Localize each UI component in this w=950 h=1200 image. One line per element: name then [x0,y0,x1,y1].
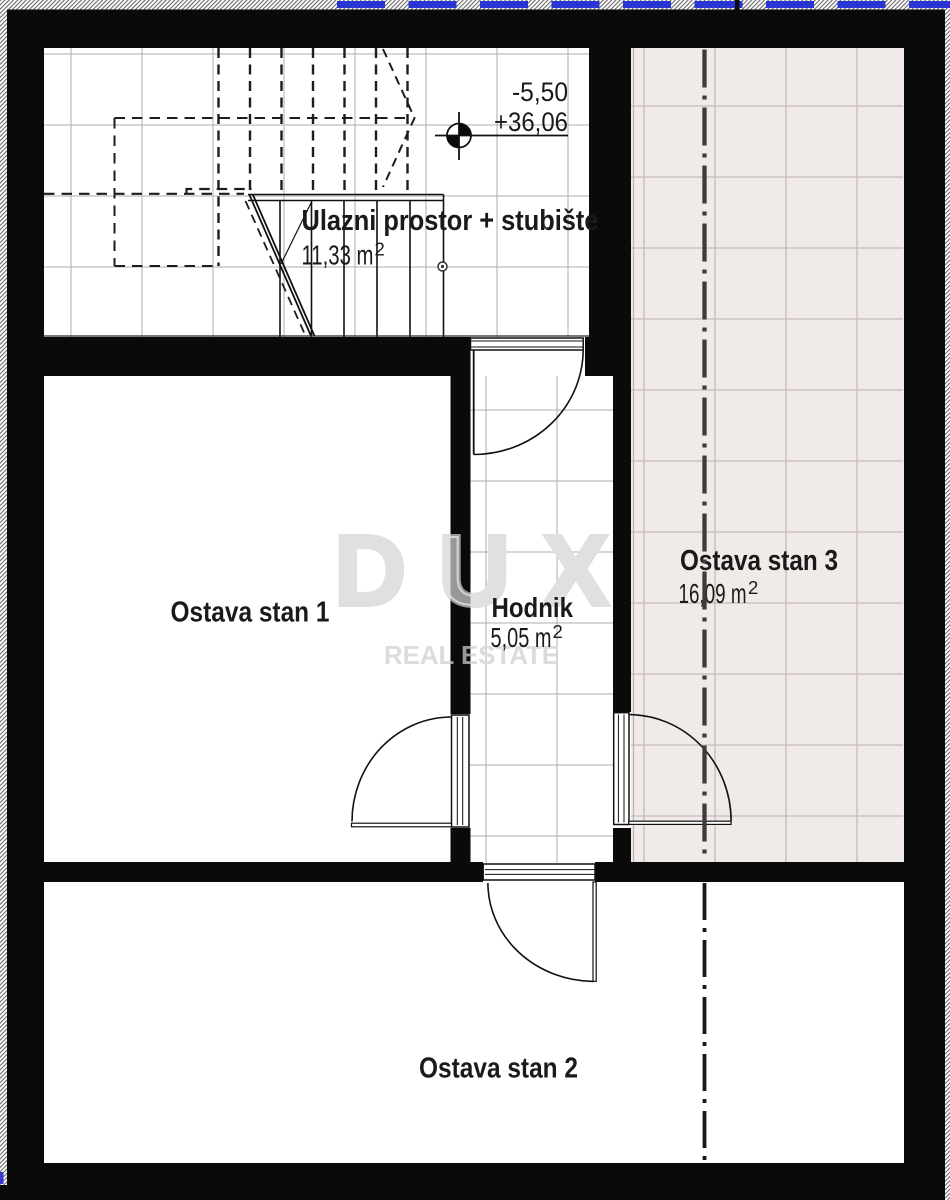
svg-text:16,09 m: 16,09 m [679,578,747,609]
svg-text:-5,50: -5,50 [512,77,568,107]
svg-text:2: 2 [748,577,758,598]
svg-text:+36,06: +36,06 [494,107,568,137]
svg-text:2: 2 [375,239,385,260]
svg-text:Ostava stan 2: Ostava stan 2 [419,1053,578,1085]
svg-text:DUX: DUX [334,515,641,627]
svg-text:Ostava stan 1: Ostava stan 1 [171,597,330,629]
svg-text:Hodnik: Hodnik [492,592,574,623]
svg-text:5,05 m: 5,05 m [491,622,552,653]
svg-text:Ulazni prostor + stubište: Ulazni prostor + stubište [302,205,599,237]
svg-text:11,33 m: 11,33 m [302,240,374,271]
svg-text:2: 2 [553,621,563,642]
